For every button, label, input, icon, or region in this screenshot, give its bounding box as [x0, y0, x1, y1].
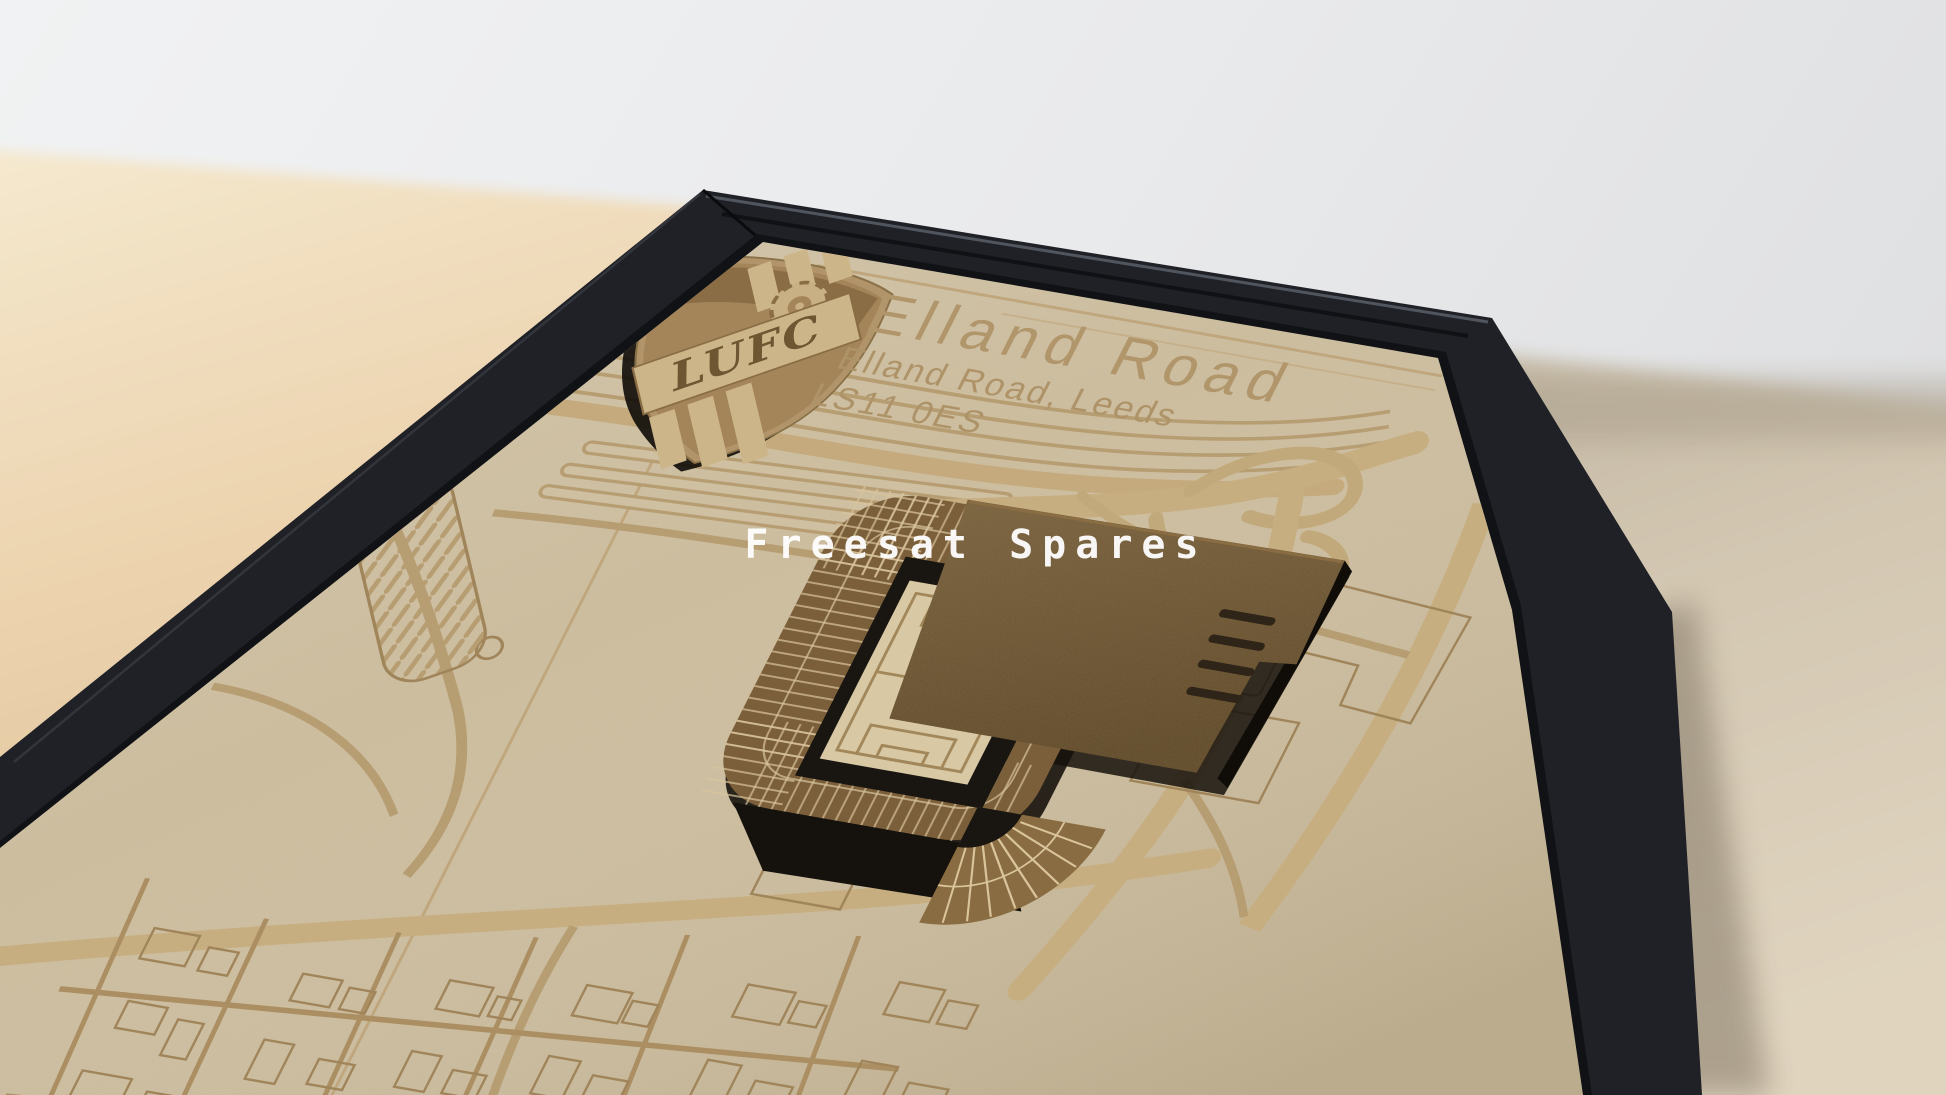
- watermark-text: Freesat Spares: [744, 522, 1207, 568]
- photo-scene: LUFC Elland Road Elland Road, Leeds LS11…: [0, 0, 1946, 1095]
